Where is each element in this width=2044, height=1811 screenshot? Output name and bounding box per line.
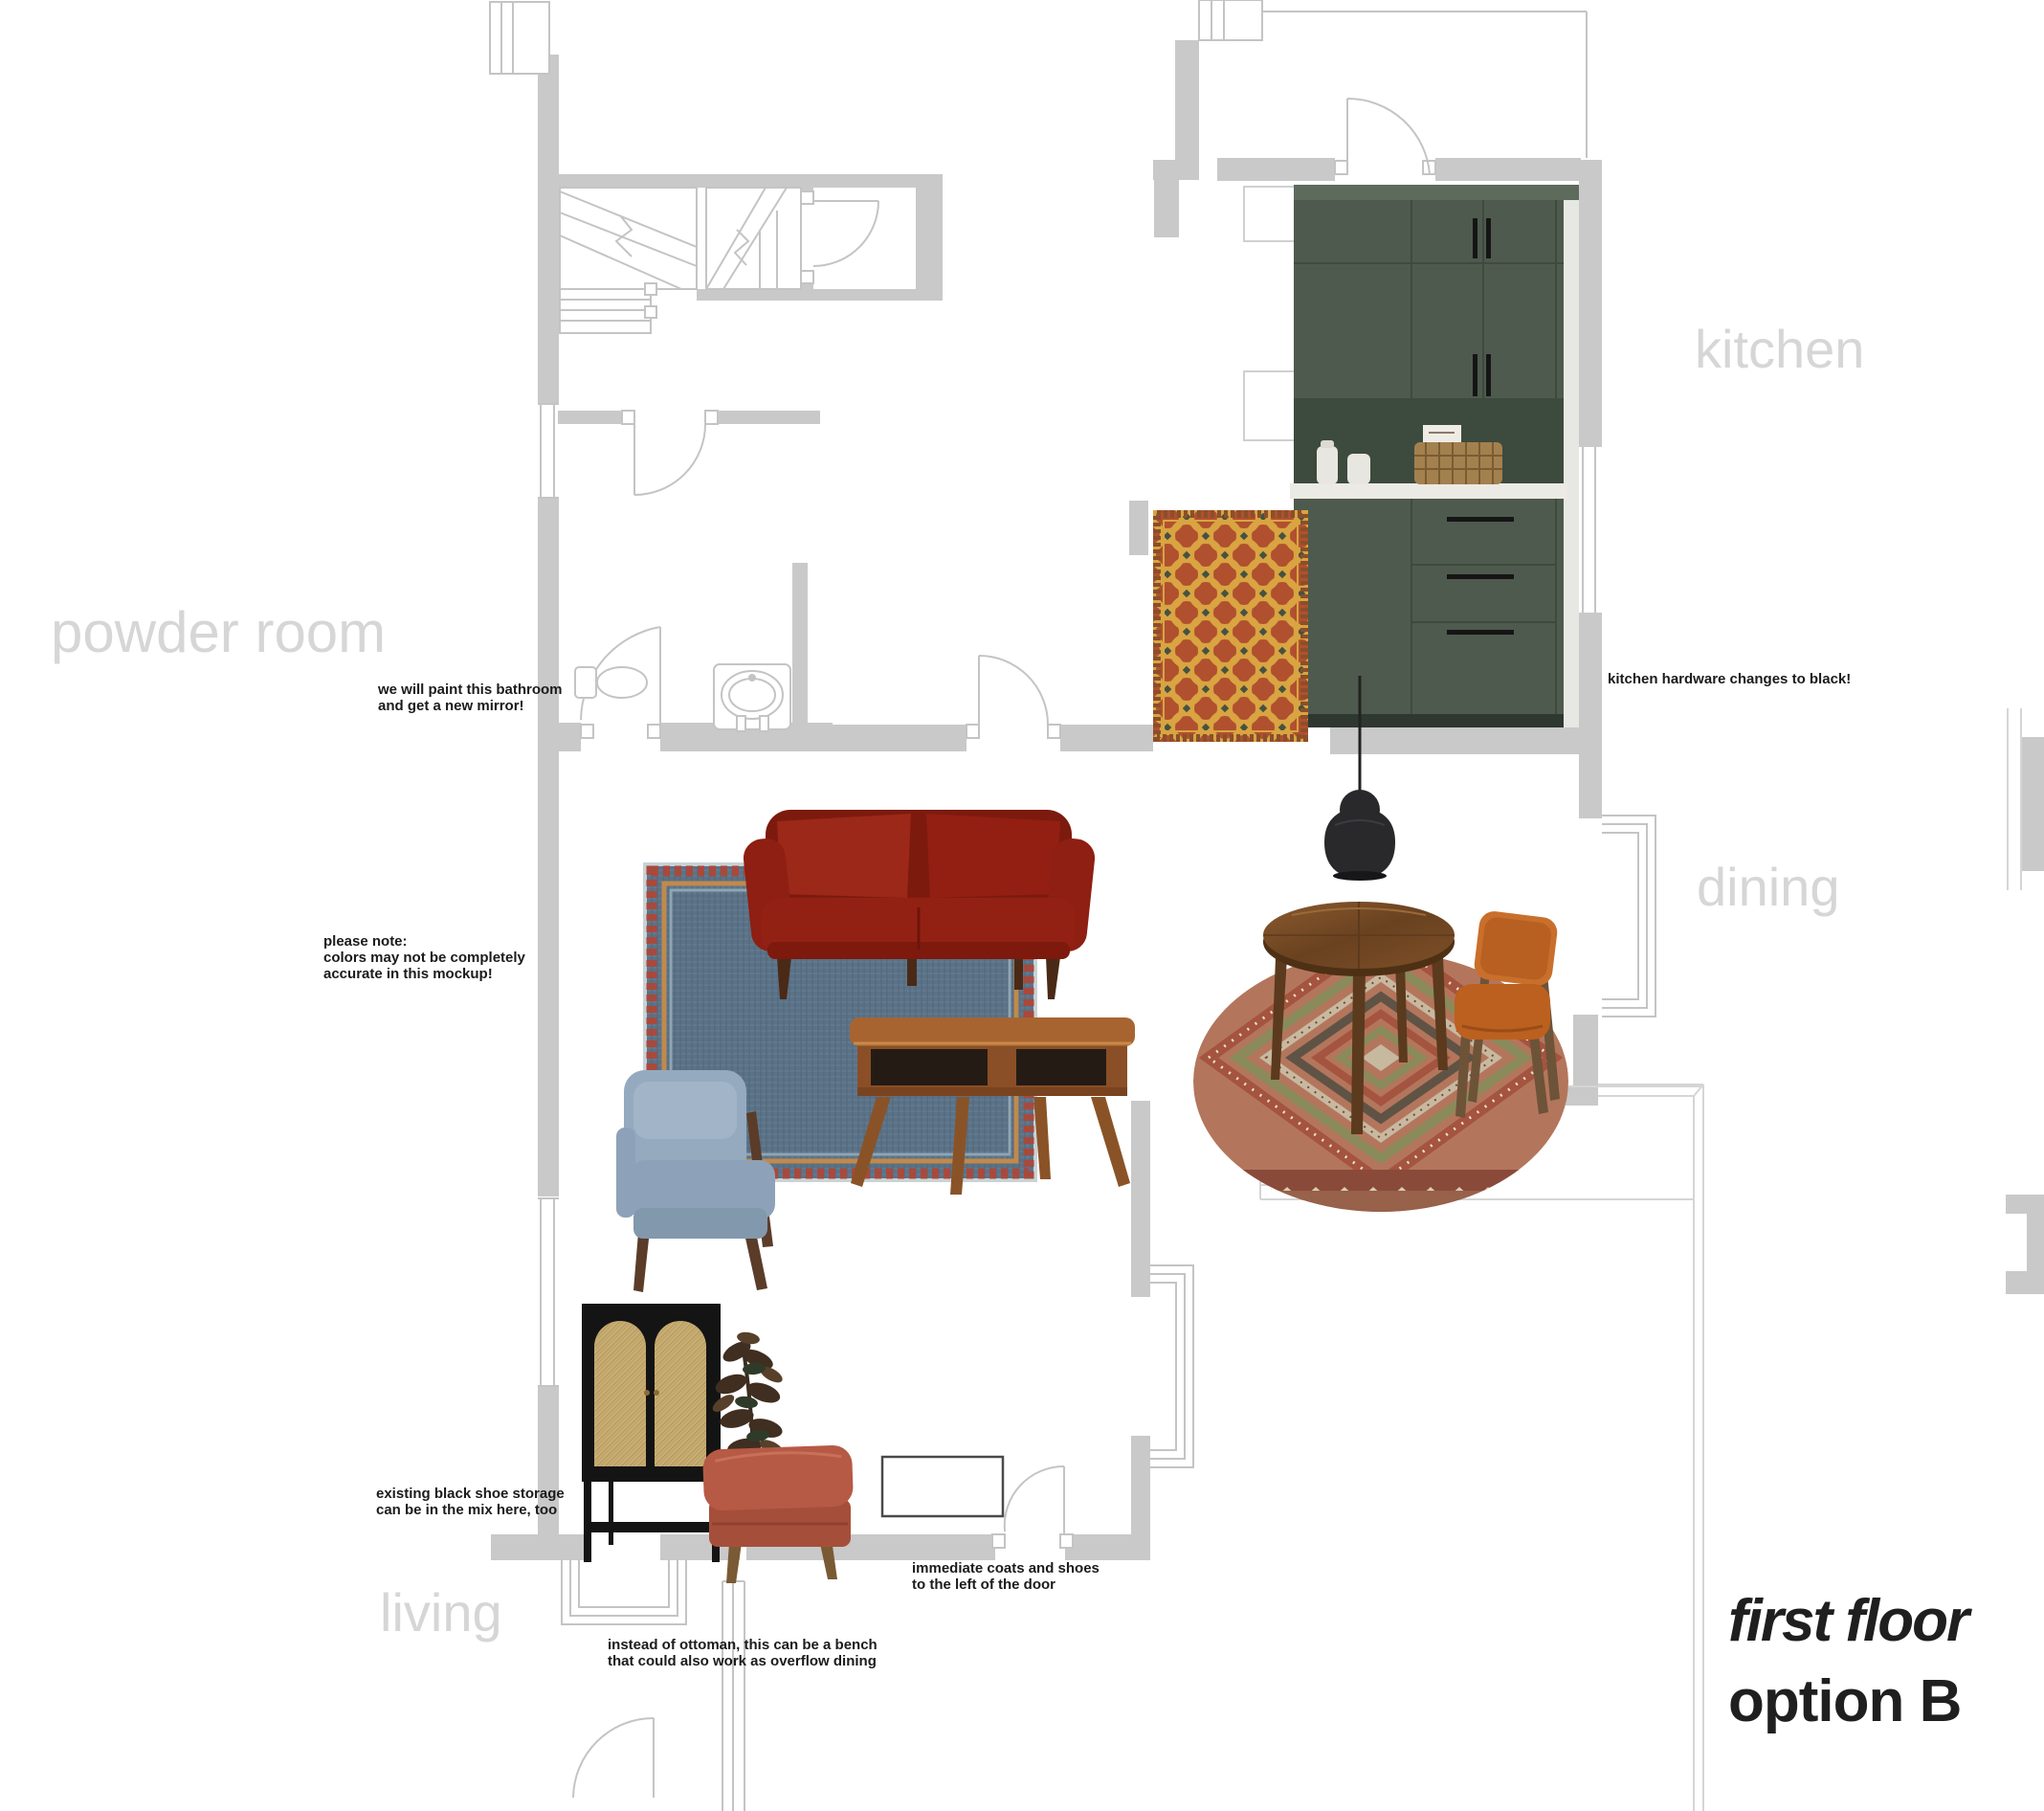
powder-room-fixtures <box>575 664 790 731</box>
room-label-dining: dining <box>1697 856 1839 918</box>
orange-tile-rug-image <box>1153 510 1308 742</box>
sink-icon <box>714 664 790 731</box>
toilet-icon <box>575 667 647 698</box>
kitchen-cabinets-image <box>1290 185 1579 727</box>
plan-title-floor: first floor <box>1728 1591 1967 1652</box>
note-bathroom: we will paint this bathroom and get a ne… <box>378 682 563 714</box>
coat-area-rectangle <box>882 1457 1003 1516</box>
note-kitchen-hardware: kitchen hardware changes to black! <box>1608 671 1851 687</box>
terracotta-ottoman-image <box>702 1444 854 1583</box>
note-coats: immediate coats and shoes to the left of… <box>912 1560 1100 1593</box>
room-label-living: living <box>380 1581 502 1643</box>
note-disclaimer: please note: colors may not be completel… <box>323 933 525 982</box>
room-label-powder-room: powder room <box>51 599 386 665</box>
plan-title-option: option B <box>1728 1671 1967 1733</box>
plant-image <box>710 1330 785 1466</box>
black-cane-cabinet-image <box>582 1304 721 1562</box>
note-shoe-storage: existing black shoe storage can be in th… <box>376 1486 565 1518</box>
plan-walls <box>491 40 2044 1560</box>
room-label-kitchen: kitchen <box>1695 318 1864 380</box>
floorplan-mockup-page: { "title": { "line1": "first floor", "li… <box>0 0 2044 1811</box>
note-ottoman: instead of ottoman, this can be a bench … <box>608 1637 878 1669</box>
plan-title: first floor option B <box>1728 1591 1967 1733</box>
